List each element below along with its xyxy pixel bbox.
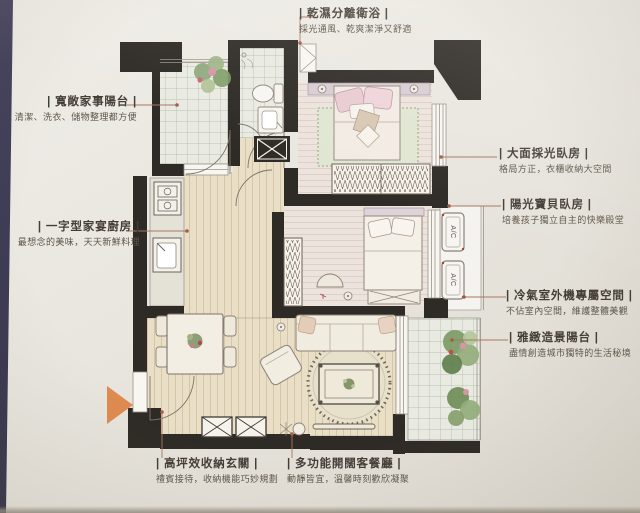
master-wardrobe bbox=[332, 164, 430, 194]
callout-subtitle: 最想念的美味，天天新鮮料理 bbox=[6, 238, 140, 248]
entry-doorway bbox=[133, 372, 147, 412]
kids-window bbox=[428, 210, 440, 298]
callout-entry: | 高坪效收納玄關 | 禮賓接待，收納機能巧妙規劃 bbox=[156, 458, 278, 485]
callout-subtitle: 採光通風、乾爽潔淨又舒適 bbox=[299, 25, 412, 35]
callout-subtitle: 禮賓接待，收納機能巧妙規劃 bbox=[156, 475, 278, 485]
sofa-pillow bbox=[298, 316, 317, 335]
callout-subtitle: 盡情創造城市獨特的生活秘境 bbox=[509, 349, 631, 359]
callout-ac-space: | 冷氣室外機專屬空間 | 不佔室內空間，維護整體美觀 bbox=[506, 290, 633, 317]
callout-title: | 大面採光臥房 | bbox=[499, 148, 612, 161]
callout-living-dining: | 多功能開闊客餐廳 | 動靜皆宜，溫馨時刻歡欣凝聚 bbox=[287, 458, 409, 485]
callout-kitchen: | 一字型家宴廚房 | 最想念的美味，天天新鮮料理 bbox=[6, 221, 140, 248]
callout-title: | 冷氣室外機專屬空間 | bbox=[506, 290, 633, 303]
callout-subtitle: 清潔、洗衣、儲物整理都方便 bbox=[10, 113, 137, 123]
chair bbox=[156, 347, 168, 367]
callout-title: | 高坪效收納玄關 | bbox=[156, 458, 278, 471]
chair bbox=[224, 316, 236, 336]
callout-subtitle: 不佔室內空間，維護整體美觀 bbox=[506, 307, 633, 317]
tv-bench bbox=[313, 424, 375, 429]
kids-headboard bbox=[364, 208, 424, 216]
toilet-tank bbox=[274, 84, 283, 103]
shower-door bbox=[300, 44, 316, 72]
callout-title: | 寬敞家事陽台 | bbox=[10, 96, 137, 109]
callout-title: | 雅緻造景陽台 | bbox=[509, 332, 631, 345]
sofa-pillow bbox=[378, 316, 397, 335]
callout-title: | 乾濕分離衛浴 | bbox=[299, 8, 412, 21]
callout-subtitle: 培養孩子獨立自主的快樂殿堂 bbox=[502, 216, 624, 226]
callout-scenic-balcony: | 雅緻造景陽台 | 盡情創造城市獨特的生活秘境 bbox=[509, 332, 631, 359]
callout-kids-bedroom: | 陽光寶貝臥房 | 培養孩子獨立自主的快樂殿堂 bbox=[502, 199, 624, 226]
callout-title: | 一字型家宴廚房 | bbox=[6, 221, 140, 234]
kids-wardrobe bbox=[284, 238, 302, 306]
callout-title: | 陽光寶貝臥房 | bbox=[502, 199, 624, 212]
stool bbox=[293, 423, 305, 435]
ac-unit-label: A/C bbox=[449, 273, 456, 286]
callout-subtitle: 格局方正，衣櫃收納大空間 bbox=[499, 165, 612, 175]
balcony-door bbox=[396, 316, 408, 414]
page-bottom-edge bbox=[0, 506, 640, 513]
pipe-shaft bbox=[254, 136, 290, 162]
chair bbox=[156, 316, 168, 336]
callout-wet-dry-bathroom: | 乾濕分離衛浴 | 採光通風、乾爽潔淨又舒適 bbox=[299, 8, 412, 35]
kitchen-corridor-floor bbox=[184, 172, 233, 318]
ac-unit-label: A/C bbox=[449, 225, 456, 238]
callout-utility-balcony: | 寬敞家事陽台 | 清潔、洗衣、儲物整理都方便 bbox=[10, 96, 137, 123]
toilet-bowl bbox=[253, 85, 274, 102]
floor-plan: A/C A/C bbox=[0, 0, 640, 513]
callout-subtitle: 動靜皆宜，溫馨時刻歡欣凝聚 bbox=[287, 475, 409, 485]
brochure-page: A/C A/C bbox=[0, 0, 640, 513]
chair bbox=[224, 347, 236, 367]
callout-title: | 多功能開闊客餐廳 | bbox=[287, 458, 409, 471]
callout-master-bedroom: | 大面採光臥房 | 格局方正，衣櫃收納大空間 bbox=[499, 148, 612, 175]
